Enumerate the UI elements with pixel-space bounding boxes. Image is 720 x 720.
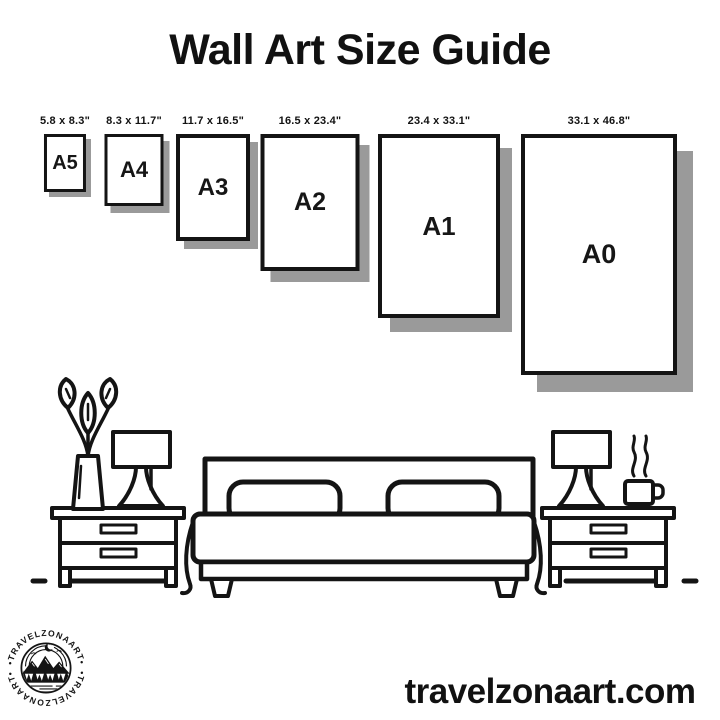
bed-base: [201, 562, 527, 579]
lamp-base: [119, 467, 163, 506]
nightstand-leg: [656, 568, 666, 586]
nightstand-leg: [60, 568, 70, 586]
coffee-cup-icon: [616, 436, 663, 508]
lamp-icon-left: [113, 432, 170, 506]
website-url: travelzonaart.com: [390, 672, 710, 712]
lamp-icon-right: [553, 432, 610, 506]
steam-icon: [633, 436, 636, 476]
brand-logo: •TRAVELZONAART• •TRAVELZONAART•: [5, 627, 87, 709]
drawer-handle: [591, 549, 626, 557]
lamp-shade: [113, 432, 170, 467]
drawer-handle: [101, 525, 136, 533]
nightstand-leg: [550, 568, 560, 586]
nightstand-right: [542, 508, 674, 586]
wall-art-size-guide-poster: Wall Art Size Guide 5.8 x 8.3" A5 8.3 x …: [0, 0, 720, 720]
steam-icon: [645, 436, 648, 476]
bedroom-illustration: [0, 0, 720, 720]
drawer-handle: [591, 525, 626, 533]
lamp-base: [559, 467, 603, 506]
plant-icon: [60, 379, 116, 509]
cup-body: [625, 481, 653, 504]
bed-leg-right: [496, 579, 517, 596]
lamp-shade: [553, 432, 610, 467]
mattress: [193, 514, 534, 562]
bed-icon: [182, 459, 545, 596]
drawer-handle: [101, 549, 136, 557]
nightstand-left: [52, 508, 184, 586]
vase: [73, 456, 103, 509]
nightstand-leg: [166, 568, 176, 586]
bed-leg-left: [211, 579, 232, 596]
